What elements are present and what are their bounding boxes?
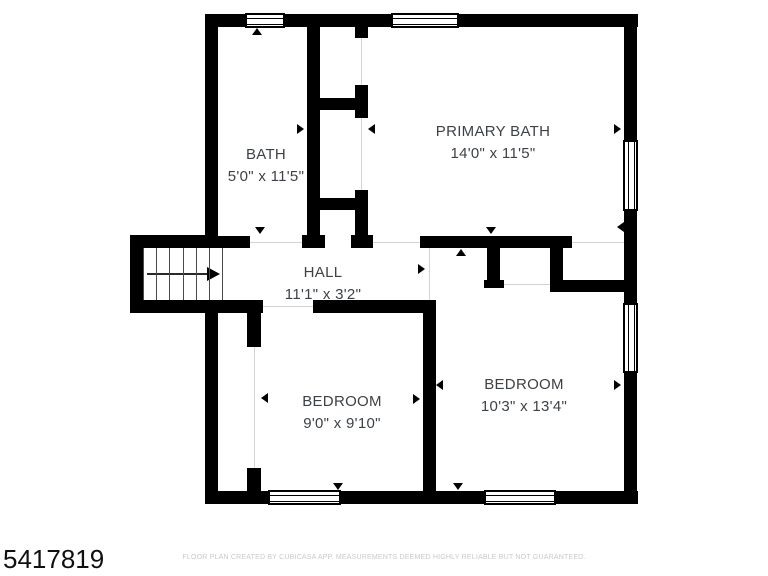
door-opening-line	[361, 118, 362, 190]
door-marker-icon	[252, 28, 262, 35]
wall	[624, 14, 637, 504]
room-name: BEDROOM	[481, 374, 567, 396]
stair-tread	[143, 248, 144, 300]
wall	[130, 235, 205, 248]
door-opening-line	[250, 242, 302, 243]
window-icon	[245, 13, 285, 28]
room-dimensions: 11'1" x 3'2"	[285, 284, 361, 306]
stairs-icon	[143, 248, 223, 300]
room-name: BEDROOM	[302, 391, 382, 413]
wall	[247, 300, 261, 347]
room-name: PRIMARY BATH	[436, 121, 550, 143]
wall	[355, 190, 368, 235]
door-opening-line	[361, 38, 362, 85]
stair-tread	[222, 248, 223, 300]
window-pane	[486, 495, 554, 501]
wall	[484, 280, 504, 288]
room-label-hall: HALL 11'1" x 3'2"	[285, 262, 361, 306]
room-name: HALL	[285, 262, 361, 284]
door-marker-icon	[614, 380, 621, 390]
door-marker-icon	[209, 124, 216, 134]
floor-plan: BATH 5'0" x 11'5" PRIMARY BATH 14'0" x 1…	[0, 0, 768, 576]
door-opening-line	[263, 306, 313, 307]
door-marker-icon	[413, 394, 420, 404]
door-opening-line	[572, 242, 624, 243]
wall	[550, 280, 637, 292]
wall	[351, 235, 373, 248]
window-pane	[393, 18, 457, 24]
wall	[423, 300, 436, 504]
stair-tread	[156, 248, 157, 300]
door-marker-icon	[436, 380, 443, 390]
wall	[550, 248, 563, 280]
room-dimensions: 9'0" x 9'10"	[302, 413, 382, 435]
door-marker-icon	[297, 124, 304, 134]
room-label-bath: BATH 5'0" x 11'5"	[228, 144, 304, 188]
stair-tread	[169, 248, 170, 300]
stair-tread	[196, 248, 197, 300]
room-label-primary-bath: PRIMARY BATH 14'0" x 11'5"	[436, 121, 550, 165]
wall	[130, 300, 263, 313]
room-dimensions: 5'0" x 11'5"	[228, 166, 304, 188]
wall	[307, 198, 368, 210]
door-marker-icon	[368, 124, 375, 134]
wall	[247, 468, 261, 504]
wall	[205, 313, 218, 504]
window-icon	[623, 303, 638, 373]
wall	[302, 235, 325, 248]
wall	[205, 236, 250, 248]
door-marker-icon	[617, 222, 624, 232]
window-icon	[484, 490, 556, 505]
room-dimensions: 10'3" x 13'4"	[481, 396, 567, 418]
stair-tread	[209, 248, 210, 300]
door-marker-icon	[333, 483, 343, 490]
door-marker-icon	[486, 227, 496, 234]
door-marker-icon	[614, 124, 621, 134]
window-icon	[623, 140, 638, 211]
window-icon	[268, 490, 341, 505]
door-marker-icon	[261, 393, 268, 403]
window-pane	[628, 305, 634, 371]
room-dimensions: 14'0" x 11'5"	[436, 143, 550, 165]
door-marker-icon	[456, 249, 466, 256]
door-marker-icon	[418, 264, 425, 274]
wall	[355, 27, 368, 38]
wall	[307, 98, 368, 110]
room-name: BATH	[228, 144, 304, 166]
footer-disclaimer: FLOOR PLAN CREATED BY CUBICASA APP. MEAS…	[182, 554, 585, 561]
door-opening-line	[429, 248, 430, 300]
wall	[420, 236, 572, 248]
door-marker-icon	[453, 483, 463, 490]
stair-tread	[183, 248, 184, 300]
door-opening-line	[254, 347, 255, 468]
door-opening-line	[373, 242, 420, 243]
room-label-bedroom-left: BEDROOM 9'0" x 9'10"	[302, 391, 382, 435]
window-pane	[247, 18, 283, 24]
wall	[487, 248, 500, 280]
door-opening-line	[504, 284, 550, 285]
door-marker-icon	[255, 227, 265, 234]
window-pane	[628, 142, 634, 209]
room-label-bedroom-right: BEDROOM 10'3" x 13'4"	[481, 374, 567, 418]
window-icon	[391, 13, 459, 28]
window-pane	[270, 495, 339, 501]
listing-id: 5417819	[3, 544, 104, 575]
